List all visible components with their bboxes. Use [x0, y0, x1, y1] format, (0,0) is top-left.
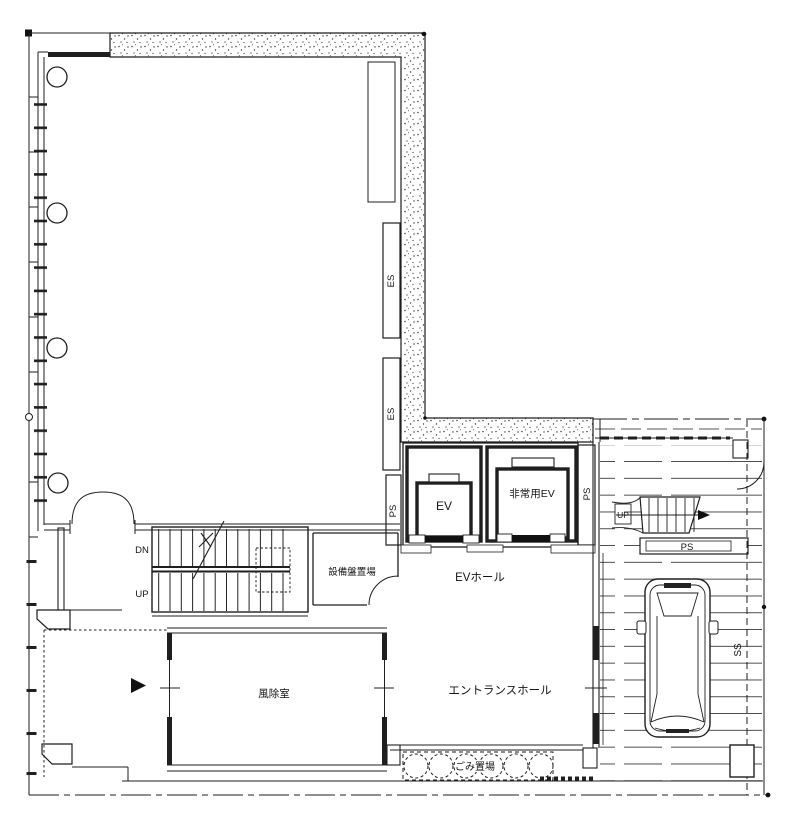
- ev-door-sill: [425, 536, 463, 542]
- ev-counterweight: [429, 474, 459, 482]
- ps-ramp-label: PS: [681, 542, 694, 553]
- stair-treads-upper: [154, 529, 290, 566]
- door-swing-arc: [369, 576, 398, 605]
- es-lower-label: ES: [386, 408, 397, 421]
- main-room: [34, 33, 401, 545]
- stippled-wall: [110, 32, 593, 442]
- car-mirror-left: [637, 621, 646, 634]
- columns: [47, 67, 68, 493]
- emergency-ev-label: 非常用EV: [509, 487, 555, 500]
- equipment-room-label: 設備盤置場: [328, 566, 376, 578]
- column-pier: [730, 745, 754, 777]
- ps-ramp-box: [640, 538, 748, 554]
- entrance-hall-label: エントランスホール: [448, 684, 551, 697]
- ev-hall-label: EVホール: [455, 571, 505, 584]
- entrance-direction-arrow: [131, 678, 146, 693]
- floor-plan-drawing: ES ES PS EV 非常用EV PS DN UP: [0, 0, 800, 832]
- stair-treads-lower: [154, 573, 290, 611]
- windbreak-room-label: 風除室: [258, 687, 290, 700]
- es-upper-label: ES: [386, 275, 397, 288]
- approach-area: [37, 528, 167, 781]
- garbage-area-label: ごみ置場: [455, 760, 495, 773]
- double-door: [72, 492, 134, 524]
- stair-up-label: UP: [135, 589, 148, 600]
- staircase: [152, 521, 308, 616]
- stair-down-label: DN: [135, 545, 149, 556]
- boundary-ticks: [27, 560, 37, 775]
- gate-leaf: [733, 440, 748, 458]
- ps-shaft-label: PS: [388, 505, 399, 518]
- ps-elevator-label: PS: [582, 488, 593, 501]
- planter-lower: [42, 744, 72, 764]
- planter-upper: [37, 610, 70, 629]
- car: [637, 579, 718, 737]
- emergency-ev-counterweight: [512, 458, 554, 467]
- elevator-block: [401, 443, 595, 553]
- emergency-ev-car: [497, 469, 568, 538]
- window-mullion-ticks: [34, 88, 47, 520]
- driveway: [593, 419, 764, 795]
- car-mirror-right: [709, 621, 718, 634]
- ev-label: EV: [436, 499, 452, 513]
- ramp-up-label: UP: [617, 510, 629, 520]
- floor-plan: ES ES PS EV 非常用EV PS DN UP: [0, 0, 800, 832]
- ss-label: SS: [733, 643, 744, 657]
- emergency-ev-door-sill: [512, 535, 550, 542]
